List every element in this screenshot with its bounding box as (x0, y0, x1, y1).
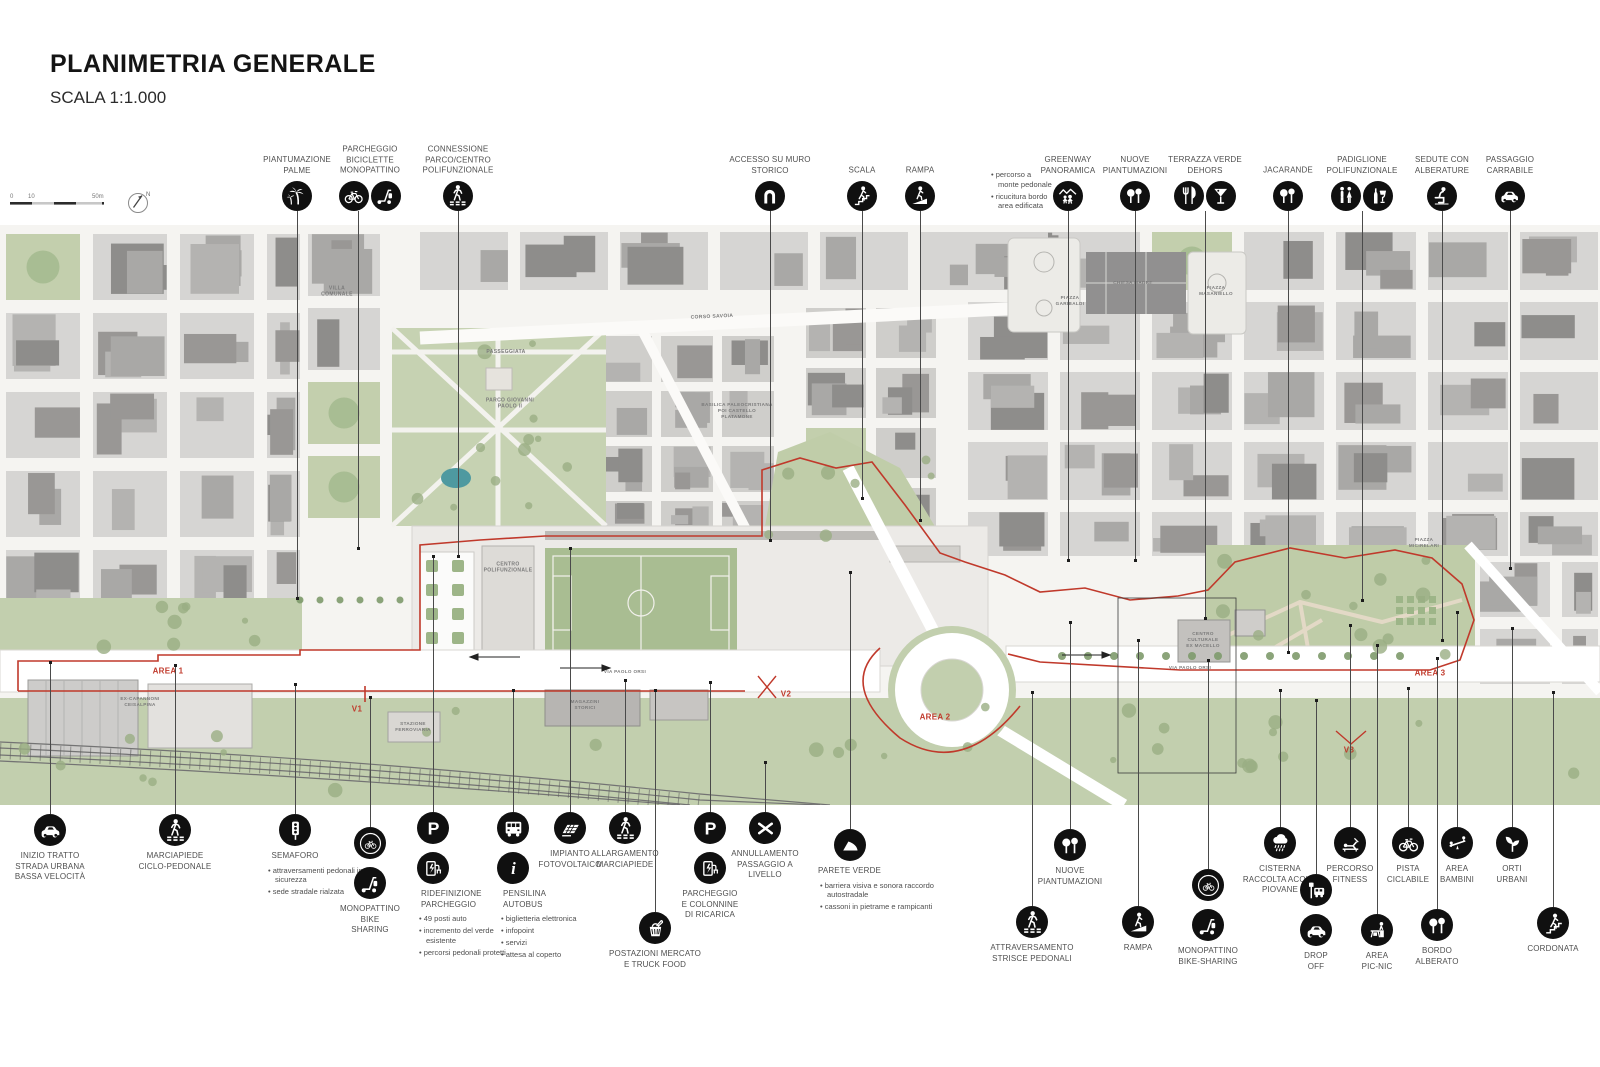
label-annullamento-passaggio-livello: ANNULLAMENTO PASSAGGIO A LIVELLO (731, 849, 798, 881)
label-cisterna-raccolta-acque: CISTERNA RACCOLTA ACQUE PIOVANE (1243, 864, 1317, 896)
icon-sprout-circle (1496, 827, 1528, 859)
icon-seesaw-circle (1441, 827, 1473, 859)
bullet-item: biglietteria elettronica (501, 914, 606, 924)
label-nuove-piantumazioni-nord: NUOVE PIANTUMAZIONI (1103, 155, 1168, 176)
scale-subtitle: SCALA 1:1.000 (50, 88, 166, 108)
palm-icon (285, 184, 308, 207)
scooter-icon (1196, 913, 1221, 938)
plan-sheet: { "header": { "title": "PLANIMETRIA GENE… (0, 0, 1600, 1067)
label-drop-off: DROP OFF (1304, 951, 1328, 972)
piazza-masaniello-shape (1188, 252, 1246, 334)
fitness-icon (1338, 831, 1363, 856)
label-pensilina-autobus: PENSILINA AUTOBUS (503, 889, 546, 910)
label-passaggio-carrabile: PASSAGGIO CARRABILE (1486, 155, 1534, 176)
bottleglass-icon (1366, 184, 1389, 207)
label-orti-urbani: ORTI URBANI (1496, 864, 1527, 885)
icon-forkknife-circle (1174, 181, 1204, 211)
icon-charge-circle (417, 852, 449, 884)
icon-wedge-circle (834, 829, 866, 861)
label-percorso-fitness: PERCORSO FITNESS (1327, 864, 1374, 885)
scale-bar: 0 10 50m N (6, 186, 176, 220)
stairs-icon (1541, 911, 1566, 936)
north-arrow-icon: N (129, 192, 151, 213)
label-accesso-su-muro-storico: ACCESSO SU MURO STORICO (729, 155, 810, 176)
label-impianto-fotovoltaico: IMPIANTO FOTOVOLTAICO (538, 849, 601, 870)
icon-trees-circle (1054, 829, 1086, 861)
piazza-garibaldi-shape (1008, 238, 1080, 332)
label-greenway-panoramica: GREENWAY PANORAMICA (1041, 155, 1096, 176)
icon-info-circle (497, 852, 529, 884)
icon-arch-circle (755, 181, 785, 211)
icon-busstop-circle (1300, 874, 1332, 906)
icon-scooter-circle (1192, 909, 1224, 941)
traffic-icon (283, 818, 308, 843)
bullet-item: attesa al coperto (501, 950, 606, 960)
trees-icon (1276, 184, 1299, 207)
icon-bottleglass-circle (1363, 181, 1393, 211)
icon-crosswalk-circle (159, 814, 191, 846)
icon-car-circle (1495, 181, 1525, 211)
central-park (392, 328, 606, 526)
label-parcheggio-biciclette-monopattino: PARCHEGGIO BICICLETTE MONOPATTINO (340, 145, 400, 177)
bullets-greenway-panoramica: percorso a monte pedonalericucitura bord… (991, 170, 1053, 213)
label-ridefinizione-parcheggio: RIDEFINIZIONE PARCHEGGIO (421, 889, 482, 910)
car-icon (38, 818, 63, 843)
icon-scooter-circle (371, 181, 401, 211)
label-piantumazione-palme: PIANTUMAZIONE PALME (263, 155, 331, 176)
bullet-item: infopoint (501, 926, 606, 936)
label-cordonata: CORDONATA (1527, 944, 1578, 955)
bikeshare-icon (1196, 873, 1221, 898)
label-parcheggio-colonnine-ricarica: PARCHEGGIO E COLONNINE DI RICARICA (682, 889, 739, 921)
charge-icon (421, 856, 446, 881)
label-scala: SCALA (849, 166, 876, 177)
bullet-item: barriera visiva e sonora raccordo autost… (820, 881, 935, 900)
label-allargamento-marciapiede: ALLARGAMENTO MARCIAPIEDE (591, 849, 658, 870)
label-monopattino-bike-sharing-est: MONOPATTINO BIKE-SHARING (1178, 946, 1238, 967)
site-plan-map (0, 225, 1600, 805)
icon-solar-circle (554, 812, 586, 844)
scooter-icon (374, 184, 397, 207)
page-title: PLANIMETRIA GENERALE (50, 50, 376, 79)
icon-trees-circle (1273, 181, 1303, 211)
label-postazioni-mercato-truck-food: POSTAZIONI MERCATO E TRUCK FOOD (609, 949, 701, 970)
crosswalk-icon (613, 816, 638, 841)
stairs-icon (850, 184, 873, 207)
label-area-bambini: AREA BAMBINI (1440, 864, 1474, 885)
sports-area (412, 526, 988, 666)
bullet-item: cassoni in pietrame e rampicanti (820, 902, 935, 912)
icon-parkP-circle (694, 812, 726, 844)
label-pista-ciclabile: PISTA CICLABILE (1387, 864, 1429, 885)
trees-icon (1123, 184, 1146, 207)
icon-rain-circle (1264, 827, 1296, 859)
crosswalk-icon (1020, 910, 1045, 935)
basket-icon (643, 916, 668, 941)
icon-greenway-circle (1053, 181, 1083, 211)
bullets-parete-verde: barriera visiva e sonora raccordo autost… (820, 881, 935, 915)
bullet-item: ricucitura bordo area edificata (991, 192, 1053, 211)
label-inizio-tratto-strada-urbana: INIZIO TRATTO STRADA URBANA BASSA VELOCI… (15, 851, 85, 883)
label-sedute-con-alberature: SEDUTE CON ALBERATURE (1415, 155, 1469, 176)
bullet-item: percorso a monte pedonale (991, 170, 1053, 189)
icon-bikeshare-circle (1192, 869, 1224, 901)
martini-icon (1209, 184, 1232, 207)
label-marciapiede-ciclo-pedonale: MARCIAPIEDE CICLO-PEDONALE (139, 851, 212, 872)
charge-icon (698, 856, 723, 881)
wedge-icon (838, 833, 863, 858)
icon-basket-circle (639, 912, 671, 944)
scooter-icon (358, 871, 383, 896)
bus-icon (501, 816, 526, 841)
north-label: N (146, 192, 150, 198)
scale-tick-0: 0 (10, 194, 14, 200)
label-bordo-alberato: BORDO ALBERATO (1415, 946, 1458, 967)
bullet-item: 49 posti auto (419, 914, 519, 924)
bullet-item: servizi (501, 938, 606, 948)
trees-icon (1058, 833, 1083, 858)
forkknife-icon (1177, 184, 1200, 207)
icon-crosswalk-circle (443, 181, 473, 211)
crosswalk-icon (163, 818, 188, 843)
seesaw-icon (1445, 831, 1470, 856)
icon-martini-circle (1206, 181, 1236, 211)
icon-trees-circle (1120, 181, 1150, 211)
scale-tick-10: 10 (28, 194, 35, 200)
info-icon (501, 856, 526, 881)
scale-bar-segments (10, 202, 104, 205)
icon-car-circle (1300, 914, 1332, 946)
icon-ramp-circle (905, 181, 935, 211)
scale-tick-50m: 50m (92, 194, 104, 200)
label-rampa: RAMPA (906, 166, 935, 177)
label-area-pic-nic: AREA PIC-NIC (1362, 951, 1393, 972)
icon-trees-circle (1421, 909, 1453, 941)
greenway-icon (1056, 184, 1079, 207)
bullets-semaforo: attraversamenti pedonali in sicurezzased… (268, 866, 380, 900)
icon-stairs-circle (1537, 907, 1569, 939)
icon-charge-circle (694, 852, 726, 884)
picnic-icon (1365, 918, 1390, 943)
solar-icon (558, 816, 583, 841)
label-rampa-sud: RAMPA (1124, 943, 1153, 954)
icon-sit-circle (1427, 181, 1457, 211)
icon-scooter-circle (354, 867, 386, 899)
bullets-pensilina-autobus: biglietteria elettronicainfopointservizi… (501, 914, 606, 962)
icon-bikeshare-circle (354, 827, 386, 859)
icon-bike-circle (1392, 827, 1424, 859)
ramp-icon (908, 184, 931, 207)
busstop-icon (1304, 878, 1329, 903)
bullet-item: percorsi pedonali protetti (419, 948, 519, 958)
bullet-item: attraversamenti pedonali in sicurezza (268, 866, 380, 885)
icon-car-circle (34, 814, 66, 846)
wc-icon (1334, 184, 1357, 207)
crossx-icon (753, 816, 778, 841)
bullets-ridefinizione-parcheggio: 49 posti autoincremento del verde esiste… (419, 914, 519, 960)
label-jacarande: JACARANDE (1263, 166, 1313, 177)
icon-bus-circle (497, 812, 529, 844)
trees-icon (1425, 913, 1450, 938)
label-monopattino-bike-sharing: MONOPATTINO BIKE SHARING (340, 904, 400, 936)
parkP-icon (698, 816, 723, 841)
ramp-icon (1126, 910, 1151, 935)
icon-traffic-circle (279, 814, 311, 846)
sit-icon (1430, 184, 1453, 207)
icon-wc-circle (1331, 181, 1361, 211)
label-nuove-piantumazioni-sud: NUOVE PIANTUMAZIONI (1038, 866, 1103, 887)
icon-bike-circle (339, 181, 369, 211)
label-parete-verde: PARETE VERDE (818, 866, 881, 877)
label-terrazza-verde-dehors: TERRAZZA VERDE DEHORS (1168, 155, 1242, 176)
icon-crosswalk-circle (609, 812, 641, 844)
icon-parkP-circle (417, 812, 449, 844)
icon-stairs-circle (847, 181, 877, 211)
label-connessione-parco-centro: CONNESSIONE PARCO/CENTRO POLIFUNZIONALE (422, 145, 493, 177)
arch-icon (758, 184, 781, 207)
bullet-item: incremento del verde esistente (419, 926, 519, 945)
bike-icon (342, 184, 365, 207)
rain-icon (1268, 831, 1293, 856)
car-icon (1304, 918, 1329, 943)
icon-picnic-circle (1361, 914, 1393, 946)
sprout-icon (1500, 831, 1525, 856)
icon-palm-circle (282, 181, 312, 211)
label-padiglione-polifunzionale: PADIGLIONE POLIFUNZIONALE (1326, 155, 1397, 176)
crosswalk-icon (446, 184, 469, 207)
icon-crossx-circle (749, 812, 781, 844)
icon-ramp-circle (1122, 906, 1154, 938)
bullet-item: sede stradale rialzata (268, 887, 380, 897)
icon-crosswalk-circle (1016, 906, 1048, 938)
icon-fitness-circle (1334, 827, 1366, 859)
parkP-icon (421, 816, 446, 841)
label-semaforo: SEMAFORO (272, 851, 319, 862)
bike-icon (1396, 831, 1421, 856)
label-attraversamento-strisce-pedonali: ATTRAVERSAMENTO STRISCE PEDONALI (990, 943, 1073, 964)
bikeshare-icon (358, 831, 383, 856)
car-icon (1498, 184, 1521, 207)
